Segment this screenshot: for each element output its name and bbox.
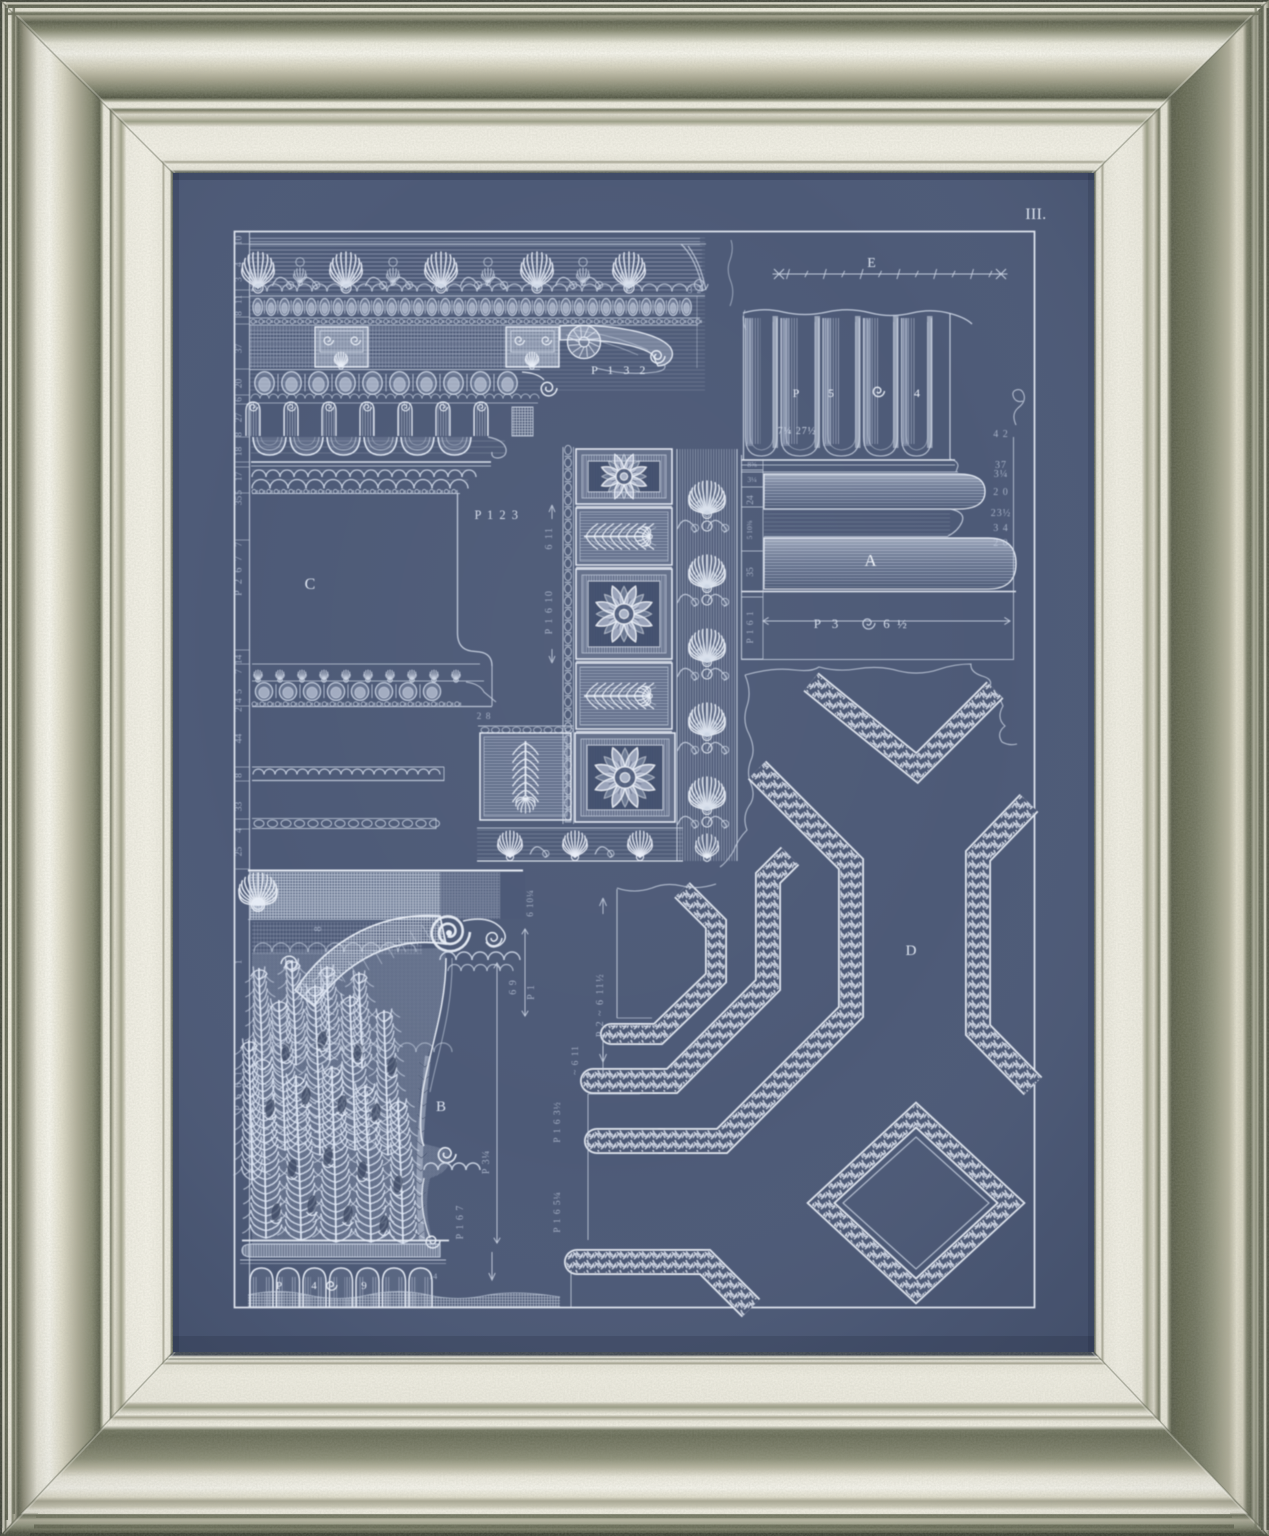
- svg-text:P 1 6 5¼: P 1 6 5¼: [553, 1191, 563, 1232]
- svg-text:P 1 6 1: P 1 6 1: [746, 610, 756, 643]
- svg-text:8: 8: [235, 432, 245, 437]
- svg-text:III.: III.: [1025, 206, 1046, 223]
- svg-text:P 1 6 3½: P 1 6 3½: [552, 1101, 563, 1142]
- svg-text:8⅝: 8⅝: [747, 460, 757, 469]
- svg-text:C: C: [305, 576, 316, 593]
- svg-text:4: 4: [914, 386, 920, 400]
- svg-text:24: 24: [746, 495, 756, 505]
- svg-text:5 10⅜: 5 10⅜: [745, 520, 754, 539]
- svg-text:E: E: [867, 256, 877, 271]
- svg-text:P 1 6 10: P 1 6 10: [544, 590, 555, 635]
- svg-text:37: 37: [235, 344, 245, 354]
- svg-text:4: 4: [311, 1280, 317, 1292]
- svg-text:6 9: 6 9: [508, 979, 519, 995]
- svg-text:25: 25: [235, 847, 245, 857]
- svg-text:1: 1: [235, 959, 245, 964]
- svg-text:5: 5: [235, 689, 245, 694]
- svg-text:5: 5: [235, 490, 245, 495]
- svg-text:P: P: [793, 386, 800, 400]
- svg-text:11: 11: [235, 295, 245, 304]
- svg-text:6 11: 6 11: [544, 526, 555, 549]
- svg-text:3 2: 3 2: [688, 285, 702, 295]
- svg-text:A: A: [864, 551, 877, 570]
- svg-text:3: 3: [235, 277, 245, 282]
- svg-text:P 2 6 7: P 2 6 7: [234, 554, 245, 596]
- svg-text:3¼: 3¼: [994, 469, 1009, 480]
- svg-text:8: 8: [235, 311, 245, 316]
- svg-text:17: 17: [235, 472, 245, 482]
- svg-text:7: 7: [235, 669, 245, 674]
- svg-text:4 2: 4 2: [993, 429, 1009, 440]
- svg-text:~ 6 11: ~ 6 11: [571, 1045, 581, 1075]
- svg-text:P 1 6 7: P 1 6 7: [455, 1205, 466, 1240]
- svg-text:35: 35: [746, 567, 756, 577]
- svg-text:2 0: 2 0: [993, 487, 1009, 498]
- svg-text:35: 35: [235, 496, 245, 506]
- svg-text:5: 5: [828, 386, 834, 400]
- svg-text:23½: 23½: [991, 508, 1012, 519]
- svg-text:20: 20: [235, 379, 245, 389]
- svg-text:3¼: 3¼: [747, 475, 757, 484]
- svg-text:P 1 2 3: P 1 2 3: [474, 508, 519, 522]
- svg-text:7¼ 27½: 7¼ 27½: [778, 426, 817, 437]
- svg-text:P 1: P 1: [526, 984, 537, 1000]
- svg-text:7: 7: [235, 542, 245, 547]
- svg-text:B: B: [436, 1099, 446, 1115]
- svg-text:D: D: [906, 943, 917, 959]
- svg-text:33: 33: [235, 802, 245, 812]
- svg-text:P 3: P 3: [814, 616, 843, 631]
- svg-text:P 1 3 2: P 1 3 2: [591, 363, 649, 377]
- svg-text:9: 9: [361, 1280, 367, 1292]
- svg-text:44: 44: [235, 734, 245, 744]
- svg-text:14: 14: [235, 655, 245, 665]
- svg-text:6 ½: 6 ½: [883, 616, 909, 631]
- svg-text:4: 4: [235, 698, 245, 703]
- svg-text:6: 6: [235, 397, 245, 402]
- svg-text:2: 2: [235, 707, 245, 712]
- svg-text:P: P: [276, 1280, 282, 1292]
- svg-text:6 10¼: 6 10¼: [525, 889, 535, 917]
- svg-text:P 2 ~ 6 11½: P 2 ~ 6 11½: [595, 973, 606, 1037]
- svg-text:8: 8: [235, 773, 245, 778]
- svg-text:2 0: 2 0: [993, 538, 1009, 549]
- svg-text:3 4: 3 4: [993, 523, 1009, 534]
- svg-text:P 6 6 1: P 6 6 1: [234, 1069, 245, 1111]
- svg-text:27: 27: [235, 413, 245, 423]
- svg-text:18: 18: [235, 447, 245, 457]
- svg-text:2 8: 2 8: [477, 712, 492, 722]
- svg-text:P 3¼: P 3¼: [481, 1150, 492, 1174]
